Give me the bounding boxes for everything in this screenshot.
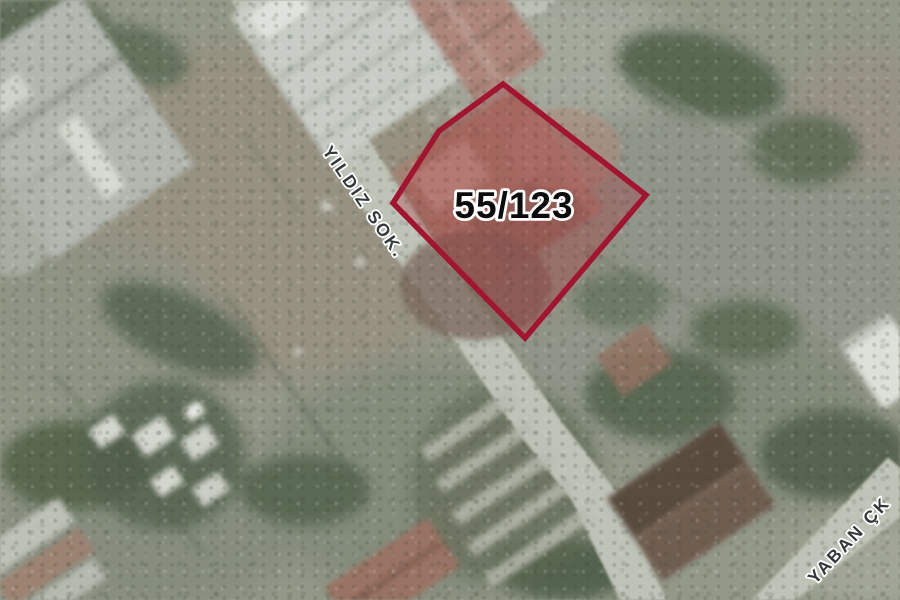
parcel-label: 55/123 (454, 185, 573, 226)
street-label-yaban-ck: YABAN ÇK (804, 492, 895, 587)
satellite-map-viewport[interactable]: 55/123 YILDIZ SOK. YABAN ÇK (0, 0, 900, 600)
map-annotations: 55/123 YILDIZ SOK. YABAN ÇK (0, 0, 900, 600)
